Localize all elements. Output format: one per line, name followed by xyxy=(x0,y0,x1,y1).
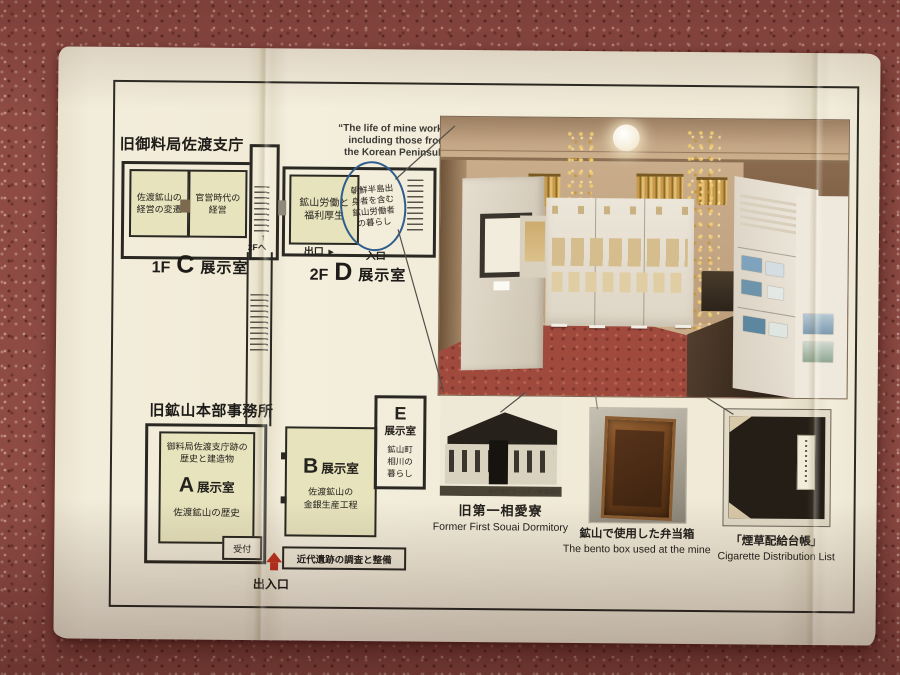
ledger-book xyxy=(729,416,825,519)
photo-thumbnail xyxy=(767,286,783,301)
label-word-exhibit: 展示室 xyxy=(358,264,406,285)
photo-documents-row xyxy=(552,238,688,267)
room-c-right-label: 官営時代の 経営 xyxy=(188,170,248,239)
label-2f: 2F xyxy=(310,267,329,285)
label-1f-c: 1F C 展示室 xyxy=(152,250,249,280)
connecting-corridor xyxy=(245,252,273,426)
room-a-desc: 御料局佐渡支庁跡の 歴史と建造物 xyxy=(166,440,247,465)
photo-thumbnail xyxy=(803,342,833,362)
dormitory-photo: 株式会社ゴールデン佐渡資料 xyxy=(440,396,563,497)
label-letter-c: C xyxy=(176,250,194,279)
bento-box xyxy=(601,416,677,521)
cigarette-caption: 「煙草配給台帳」 Cigarette Distribution List xyxy=(696,532,856,563)
cigarette-caption-jp: 「煙草配給台帳」 xyxy=(696,532,856,549)
dormitory-door xyxy=(489,440,509,484)
corridor-stairs xyxy=(250,294,269,352)
stairs-to-2f xyxy=(254,186,269,232)
room-b-door xyxy=(281,496,287,503)
photo-document xyxy=(525,222,545,262)
room-b: B 展示室 佐渡鉱山の 金銀生産工程 xyxy=(284,426,377,537)
room-a-sub: 佐渡鉱山の歴史 xyxy=(173,505,240,520)
photo-thumbnail xyxy=(766,261,784,277)
panel-foot xyxy=(551,324,567,327)
photo-ceiling xyxy=(441,117,849,163)
room-b-label: B 展示室 xyxy=(303,455,359,479)
bento-caption: 鉱山で使用した弁当箱 The bento box used at the min… xyxy=(554,525,719,556)
panel-foot xyxy=(631,325,647,328)
panel-foot xyxy=(589,325,605,328)
photo-picture-label xyxy=(493,281,509,290)
room-b-door xyxy=(281,452,287,459)
label-2f-d: 2F D 展示室 xyxy=(310,258,407,288)
bento-caption-en: The bento box used at the mine xyxy=(554,543,719,556)
photo-thumbnail xyxy=(742,255,762,272)
photo-thumbnail xyxy=(743,316,765,335)
label-word-exhibit: 展示室 xyxy=(197,477,235,496)
label-letter-a: A xyxy=(179,474,194,498)
entrance-exit-arrow-icon xyxy=(266,552,282,570)
room-c-pillar xyxy=(180,199,190,212)
label-1f: 1F xyxy=(152,259,171,277)
entrance-label: 入口 xyxy=(366,247,386,262)
room-b-desc: 佐渡鉱山の 金銀生産工程 xyxy=(304,486,358,512)
room-e-desc: 鉱山町 相川の 暮らし xyxy=(387,444,413,480)
photo-thumbnail xyxy=(741,279,761,296)
photo-ceiling-light xyxy=(613,124,640,151)
bento-box-interior xyxy=(613,429,666,508)
label-letter-e: E xyxy=(394,404,406,422)
carpet-background: 旧御料局佐渡支庁 佐渡鉱山の 経営の変遷 官営時代の 経営 ↑ 2Fへ 1F C… xyxy=(0,0,900,675)
room-d-stairs xyxy=(407,179,423,231)
dormitory-caption-jp: 旧第一相愛寮 xyxy=(420,500,580,520)
panel-foot xyxy=(675,325,691,328)
photo-thumbnail xyxy=(769,322,787,338)
room-e: E 展示室 鉱山町 相川の 暮らし xyxy=(374,395,427,489)
cigarette-caption-en: Cigarette Distribution List xyxy=(696,550,856,563)
reception-box: 受付 xyxy=(222,536,262,560)
label-word-exhibit: 展示室 xyxy=(200,257,248,278)
exit-label: 出口 ► xyxy=(304,243,336,258)
photo-display-panel xyxy=(795,196,849,399)
photo-documents-row xyxy=(552,206,688,215)
photo-credit: 株式会社ゴールデン佐渡資料 xyxy=(488,487,560,496)
bento-caption-jp: 鉱山で使用した弁当箱 xyxy=(554,525,719,542)
arrow-head xyxy=(266,552,282,562)
survey-strip-label: 近代遺跡の調査と整備 xyxy=(282,546,406,570)
building-c-title: 旧御料局佐渡支庁 xyxy=(120,133,244,155)
ledger-corner xyxy=(730,416,752,432)
ledger-label-writing xyxy=(805,439,807,484)
ledger-corner xyxy=(729,502,751,518)
room-a-label: A 展示室 xyxy=(179,474,235,498)
cigarette-ledger-photo xyxy=(722,408,831,527)
photo-documents-row xyxy=(551,272,687,293)
label-word-exhibit: 展示室 xyxy=(384,423,416,438)
photo-thumbnail xyxy=(803,314,833,334)
exit-text: 出口 xyxy=(304,247,324,258)
bento-box-photo xyxy=(588,407,687,524)
label-word-exhibit: 展示室 xyxy=(321,458,359,477)
room-a: 御料局佐渡支庁跡の 歴史と建造物 A 展示室 佐渡鉱山の歴史 xyxy=(158,431,255,544)
room-d-door xyxy=(278,200,286,215)
photo-display-panel xyxy=(545,198,694,327)
arrow-stem xyxy=(270,562,278,570)
exit-arrow-icon: ► xyxy=(327,247,336,257)
entrance-exit-label: 出入口 xyxy=(253,575,289,592)
label-letter-b: B xyxy=(303,455,318,479)
pamphlet: 旧御料局佐渡支庁 佐渡鉱山の 経営の変遷 官営時代の 経営 ↑ 2Fへ 1F C… xyxy=(53,46,880,645)
exhibition-room-photo xyxy=(438,116,850,400)
ledger-title-label xyxy=(797,435,816,490)
label-letter-d: D xyxy=(334,258,352,287)
